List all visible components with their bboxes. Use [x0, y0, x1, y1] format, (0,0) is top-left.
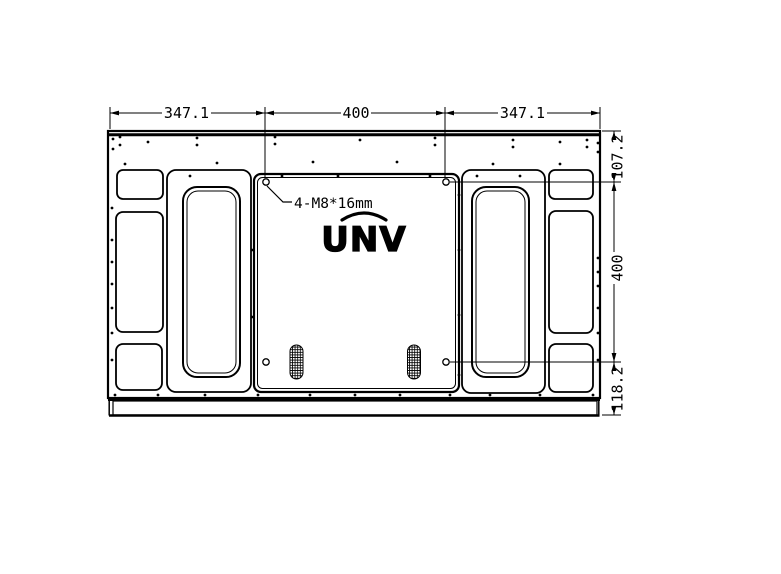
dim-label-right-middle: 400 — [609, 254, 627, 281]
unv-logo: UNV — [321, 213, 406, 260]
vent-right — [408, 345, 421, 379]
dim-label-right-bottom: 118.2 — [609, 366, 627, 411]
left-handle-slot-inner — [187, 191, 236, 373]
mount-hole-top-left — [263, 179, 269, 185]
dim-label-top-center: 400 — [342, 104, 369, 122]
dim-label-right-top: 107.2 — [609, 134, 627, 179]
right-cutout-middle — [549, 211, 593, 333]
mount-spec-label: 4-M8*16mm — [294, 196, 373, 212]
logo-text: UNV — [321, 220, 406, 260]
bottom-strip — [113, 401, 597, 415]
right-handle-slot-inner — [476, 191, 525, 373]
left-handle-panel — [167, 170, 251, 392]
dim-label-top-right: 347.1 — [500, 104, 545, 122]
right-cutout-top — [549, 170, 593, 199]
rear-panel-mounting-drawing: UNV 347.1 400 347.1 107.2 400 118.2 4-M8… — [0, 0, 781, 574]
dim-label-top-left: 347.1 — [164, 104, 209, 122]
left-cutout-middle — [116, 212, 163, 332]
mount-hole-bottom-right — [443, 359, 449, 365]
right-cutout-bottom — [549, 344, 593, 392]
mount-hole-top-right — [443, 179, 449, 185]
left-cutout-bottom — [116, 344, 162, 390]
mount-hole-bottom-left — [263, 359, 269, 365]
left-cutout-top — [117, 170, 163, 199]
drawing-canvas: UNV 347.1 400 347.1 107.2 400 118.2 4-M8… — [0, 0, 781, 574]
vent-left — [290, 345, 303, 379]
right-handle-panel — [462, 170, 545, 393]
